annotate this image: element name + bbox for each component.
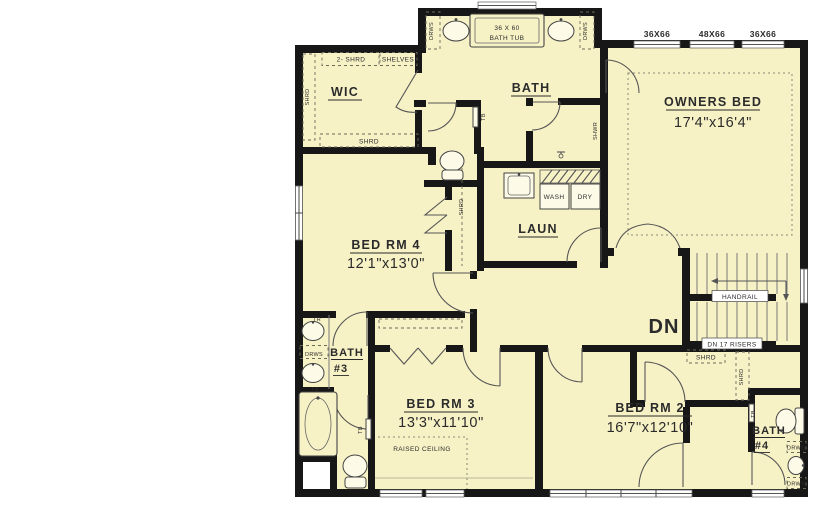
window-bed4 [296,186,303,240]
window-bath4 [752,490,784,497]
shwr-label: SHWR [593,122,599,140]
tr-label-top: TR [313,317,321,323]
shrd2-label: 2- SHRD [337,57,366,64]
drws-label-left: DRWS [429,22,435,40]
window-label-1: 36X66 [644,29,671,39]
towel-bar-owners [473,107,478,127]
tb-label-bath4: TB [751,410,757,418]
handrail-label: HANDRAIL [722,294,758,301]
drws-label-right: DRWS [583,22,589,40]
laundry-sink [504,173,534,198]
bed3-dims: 13'3"x11'10" [398,415,484,431]
owners-dims: 17'4"x16'4" [674,115,752,131]
drws-label-bath4-bottom: DRWS [787,482,805,488]
shrd-label-bed2-side: SHRD [739,369,745,386]
owners-name: OWNERS BED [664,95,762,109]
bed2-dims: 16'7"x12'10" [607,420,694,436]
tr-label-bottom: TR [311,387,319,393]
bed4-name: BED RM 4 [351,238,420,252]
raised-ceiling-label: RAISED CEILING [393,446,451,453]
bed3-name: BED RM 3 [406,397,475,411]
shrd-label-wic-bottom: SHRD [359,139,379,146]
shrd-label-bed4-closet: SHRD [459,199,465,216]
tb-label-owners: TB [481,113,487,121]
toilet-bath3 [343,455,367,488]
sink-bath3-bottom [302,363,324,382]
toilet-owners [440,151,464,180]
bath3-name: BATH [330,347,364,359]
tub-size-label: 36 X 60 [494,25,519,32]
window-bed3-2 [426,490,464,497]
drws-label-bath3: DRWS [305,352,323,358]
bathtub-bath3 [299,392,337,456]
towel-bar-bath3 [366,419,371,439]
window-label-2: 48X66 [699,29,726,39]
window-bed3-1 [380,490,422,497]
floor-plan-page: HANDRAIL DN 17 RISERS DN [0,0,825,522]
washer-label: WASH [544,194,565,201]
floor-plan-drawing: HANDRAIL DN 17 RISERS DN [0,0,825,522]
tb-label-bath3: TB [358,426,364,434]
bath3-num: #3 [334,363,348,375]
bed2-name: BED RM 2 [615,401,684,415]
window-owners-3 [742,41,784,48]
window-label-3: 36X66 [750,29,777,39]
bath-owners-label: BATH [512,81,551,95]
window-owners-2 [690,41,734,48]
window-stair [801,269,808,303]
window-tub [478,2,536,9]
laundry-label: LAUN [518,222,558,236]
window-owners-1 [634,41,680,48]
dn-risers-label: DN 17 RISERS [707,341,756,348]
sink-bath3-top [302,321,324,340]
tub-name-label: BATH TUB [490,35,525,42]
dn-label: DN [649,316,680,338]
bath4-num: #4 [755,440,769,452]
sink-bath4 [788,457,804,475]
bed4-dims: 12'1"x13'0" [347,256,425,272]
shrd-label-wic-left: SHRD [305,89,311,106]
drws-label-bath4-top: DRWS [787,446,805,452]
shrd-label-bed2-top: SHRD [696,355,716,362]
wic-label: WIC [331,85,359,99]
dryer-label: DRY [578,194,593,201]
shelves-label: SHELVES [382,57,415,64]
bath4-name: BATH [752,425,786,437]
chase-space [302,462,330,489]
window-bed2 [550,490,692,497]
